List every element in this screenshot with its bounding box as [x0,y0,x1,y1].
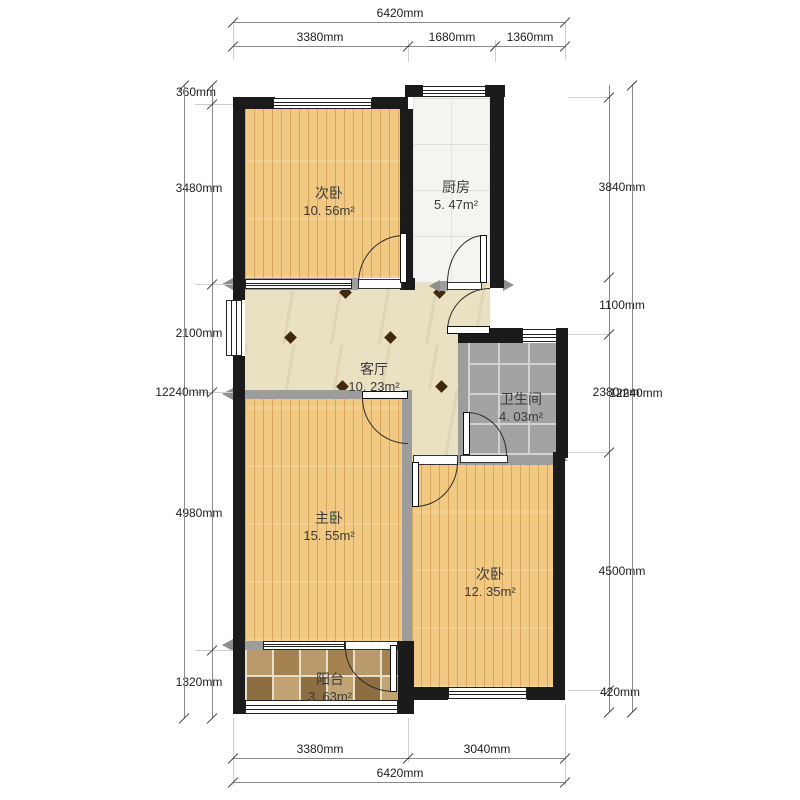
entry-door-leaf [447,326,490,334]
extension-line [195,284,233,285]
room-label-balcony: 阳台 3. 63m² [308,671,352,705]
dim-left-overall: 12240mm [155,385,208,399]
floor-plan: 次卧 10. 56m² 厨房 5. 47m² 客厅 10. 23m² 卫生间 4… [0,0,800,800]
dimension-line-top-overall [233,22,565,23]
wall-exterior [233,356,245,714]
room-label-bedroom-top: 次卧 10. 56m² [303,185,354,219]
room-area: 12. 35m² [464,584,515,600]
room-area: 3. 63m² [308,689,352,705]
dim-left-seg-2: 2100mm [176,326,223,340]
dimension-line-left-overall [184,85,185,718]
room-label-master-bedroom: 主卧 15. 55m² [303,510,354,544]
window-living-left [226,300,242,356]
dim-left-seg-1: 3480mm [176,181,223,195]
wall-exterior [556,328,568,458]
dim-top-seg-1: 1680mm [429,30,476,44]
dim-left-seg-4: 1320mm [176,675,223,689]
wall-end-arrow [222,388,233,400]
wall-end-arrow [429,280,440,292]
dimension-line-top-segments [233,46,565,47]
door-leaf [463,412,470,455]
room-label-bathroom: 卫生间 4. 03m² [499,391,543,425]
dim-right-overall: 12240mm [609,386,662,400]
dim-top-seg-2: 1360mm [507,30,554,44]
extension-line [195,650,233,651]
room-area: 5. 47m² [434,197,478,213]
wall-exterior [233,97,245,300]
room-name: 卫生间 [499,391,543,409]
window-balcony-inner [263,641,345,650]
door-leaf [480,235,487,283]
dimension-line-bottom-overall [233,782,565,783]
window-bathroom [522,329,557,342]
wall-exterior [372,97,408,109]
dim-bottom-overall: 6420mm [377,766,424,780]
door-leaf [400,233,407,283]
extension-line [233,718,234,786]
extension-line [568,452,610,453]
extension-line [568,334,610,335]
dim-right-seg-1: 1100mm [599,298,645,312]
dim-top-seg-0: 3380mm [297,30,344,44]
room-area: 10. 23m² [348,379,399,395]
room-area: 15. 55m² [303,528,354,544]
door-threshold [460,455,508,463]
room-name: 客厅 [348,361,399,379]
room-name: 次卧 [464,566,515,584]
dim-bottom-seg-1: 3040mm [464,742,511,756]
dimension-line-bottom-segments [233,758,565,759]
room-label-living-room: 客厅 10. 23m² [348,361,399,395]
wall-exterior [553,452,565,700]
dim-top-overall: 6420mm [377,6,424,20]
door-leaf [412,462,419,507]
dim-right-seg-0: 3840mm [599,180,646,194]
room-area: 4. 03m² [499,409,543,425]
window-bedroom-top [273,98,372,109]
room-name: 阳台 [308,671,352,689]
extension-line [568,97,610,98]
floor-hallway [408,390,458,465]
dim-right-seg-4: 420mm [600,685,640,699]
room-name: 厨房 [434,179,478,197]
window-bedroom-right [448,687,527,699]
room-name: 次卧 [303,185,354,203]
room-name: 主卧 [303,510,354,528]
dim-bottom-seg-0: 3380mm [297,742,344,756]
room-label-kitchen: 厨房 5. 47m² [434,179,478,213]
extension-line [565,704,566,786]
room-area: 10. 56m² [303,203,354,219]
window-interior-band [245,279,352,289]
room-label-bedroom-right: 次卧 12. 35m² [464,566,515,600]
wall-exterior [233,700,245,714]
wall-exterior [527,687,565,700]
dim-left-seg-3: 4980mm [176,506,223,520]
wall-exterior [398,700,414,714]
door-leaf [390,645,397,692]
dimension-line-left-segments [212,85,213,718]
dim-right-seg-3: 4500mm [599,564,646,578]
wall-exterior [405,85,423,97]
window-kitchen [422,86,486,97]
extension-line [195,104,233,105]
wall-interior [233,390,362,399]
extension-line [233,22,234,60]
wall-end-arrow [503,279,514,291]
wall-exterior [490,85,504,288]
extension-line [565,22,566,60]
